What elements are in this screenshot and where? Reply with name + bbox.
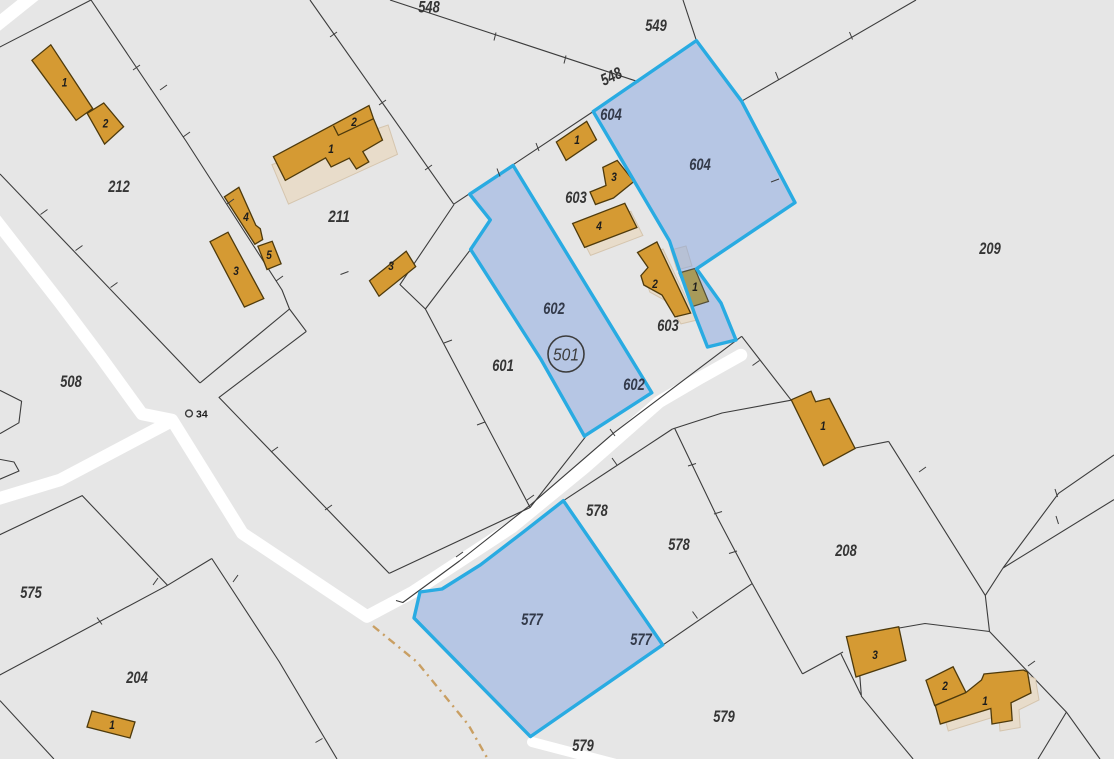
- svg-text:204: 204: [125, 669, 147, 687]
- svg-text:4: 4: [595, 221, 602, 233]
- svg-text:603: 603: [657, 317, 679, 335]
- svg-text:602: 602: [623, 376, 645, 394]
- svg-text:575: 575: [20, 584, 42, 602]
- svg-text:4: 4: [242, 212, 249, 224]
- svg-text:579: 579: [572, 737, 594, 755]
- svg-text:577: 577: [521, 611, 543, 629]
- svg-text:548: 548: [418, 0, 440, 17]
- svg-text:2: 2: [651, 279, 658, 291]
- svg-text:2: 2: [941, 681, 948, 693]
- svg-text:209: 209: [978, 240, 1001, 258]
- svg-text:1: 1: [820, 421, 826, 433]
- svg-text:1: 1: [982, 696, 988, 708]
- svg-text:578: 578: [668, 536, 690, 554]
- svg-text:5: 5: [266, 250, 272, 262]
- svg-text:1: 1: [328, 144, 334, 156]
- svg-text:2: 2: [350, 117, 357, 129]
- svg-text:501: 501: [553, 345, 579, 365]
- svg-text:3: 3: [872, 650, 878, 662]
- svg-text:604: 604: [600, 106, 622, 124]
- svg-text:211: 211: [327, 208, 349, 226]
- svg-text:3: 3: [233, 266, 239, 278]
- svg-text:602: 602: [543, 300, 565, 318]
- svg-text:3: 3: [611, 172, 617, 184]
- svg-text:3: 3: [388, 261, 394, 273]
- svg-text:2: 2: [102, 119, 109, 131]
- svg-text:208: 208: [834, 542, 857, 560]
- svg-text:604: 604: [689, 156, 711, 174]
- svg-text:601: 601: [492, 357, 514, 375]
- svg-text:1: 1: [574, 135, 580, 147]
- svg-text:212: 212: [107, 178, 129, 196]
- svg-text:579: 579: [713, 708, 735, 726]
- svg-text:508: 508: [60, 373, 82, 391]
- svg-text:603: 603: [565, 189, 587, 207]
- svg-text:1: 1: [62, 78, 68, 90]
- svg-text:34: 34: [196, 409, 208, 421]
- svg-text:1: 1: [109, 720, 115, 732]
- svg-text:549: 549: [645, 17, 667, 35]
- svg-text:578: 578: [586, 502, 608, 520]
- svg-text:577: 577: [630, 631, 652, 649]
- svg-text:1: 1: [692, 282, 698, 294]
